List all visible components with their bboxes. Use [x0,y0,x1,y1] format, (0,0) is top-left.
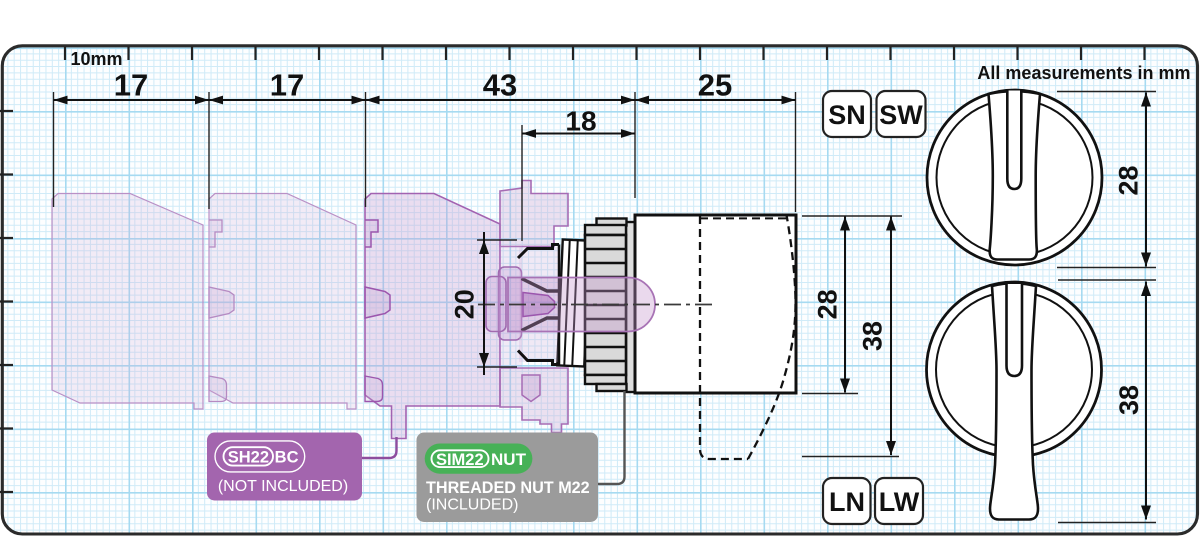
svg-text:NUT: NUT [491,450,527,469]
svg-text:17: 17 [114,68,148,103]
svg-text:28: 28 [813,289,843,319]
svg-text:18: 18 [565,106,596,137]
svg-text:10mm: 10mm [71,49,123,69]
svg-text:(NOT INCLUDED): (NOT INCLUDED) [218,478,348,495]
svg-text:(INCLUDED): (INCLUDED) [426,497,518,514]
svg-text:All measurements in mm: All measurements in mm [977,63,1190,83]
svg-text:LN: LN [829,487,865,517]
svg-text:20: 20 [450,289,480,319]
svg-text:LW: LW [879,487,920,517]
svg-text:SN: SN [828,100,866,130]
svg-text:SH22: SH22 [228,449,269,467]
svg-text:SW: SW [879,100,923,130]
svg-text:38: 38 [858,321,888,351]
svg-text:43: 43 [483,68,517,103]
svg-text:28: 28 [1114,165,1144,195]
svg-text:38: 38 [1114,385,1144,415]
svg-text:SIM22: SIM22 [436,451,484,469]
svg-text:17: 17 [270,68,304,103]
svg-text:THREADED NUT M22: THREADED NUT M22 [426,479,590,497]
svg-text:BC: BC [275,449,299,467]
svg-text:25: 25 [698,68,732,103]
